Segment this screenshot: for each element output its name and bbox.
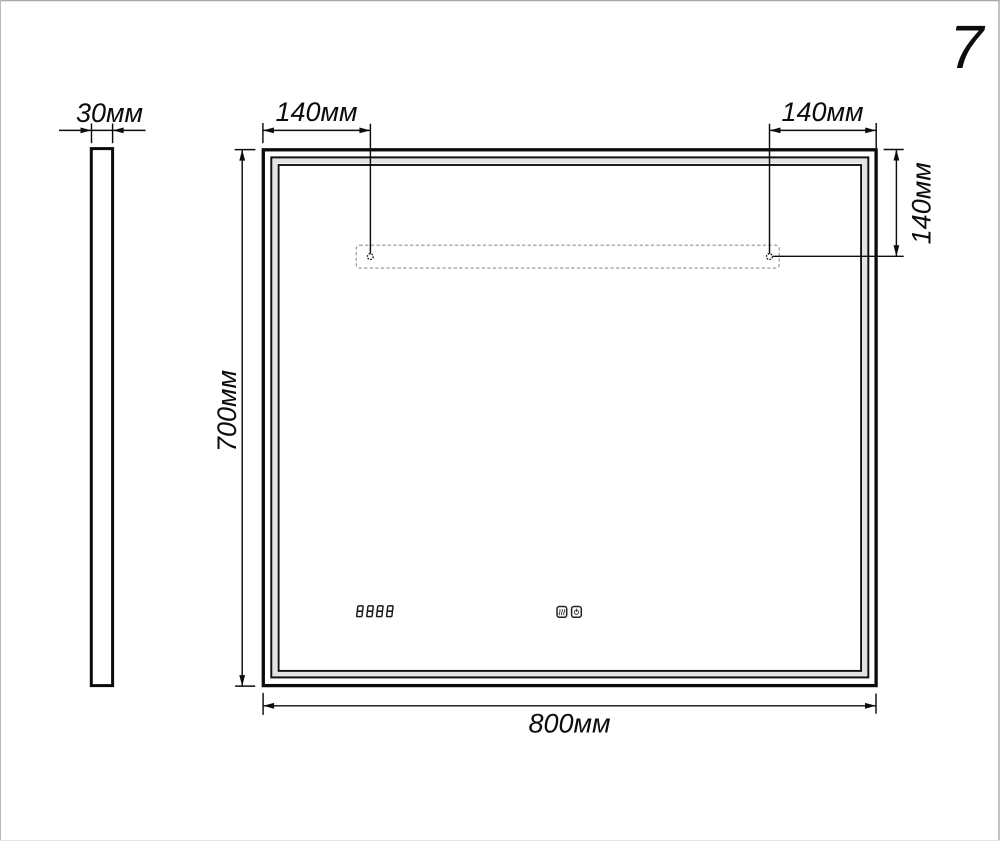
svg-text:30мм: 30мм [76,98,143,128]
svg-text:800мм: 800мм [528,709,610,739]
svg-text:140мм: 140мм [781,97,863,127]
svg-text:7: 7 [950,13,986,81]
svg-text:140мм: 140мм [906,162,936,244]
svg-text:700мм: 700мм [212,370,242,452]
svg-text:140мм: 140мм [275,97,357,127]
